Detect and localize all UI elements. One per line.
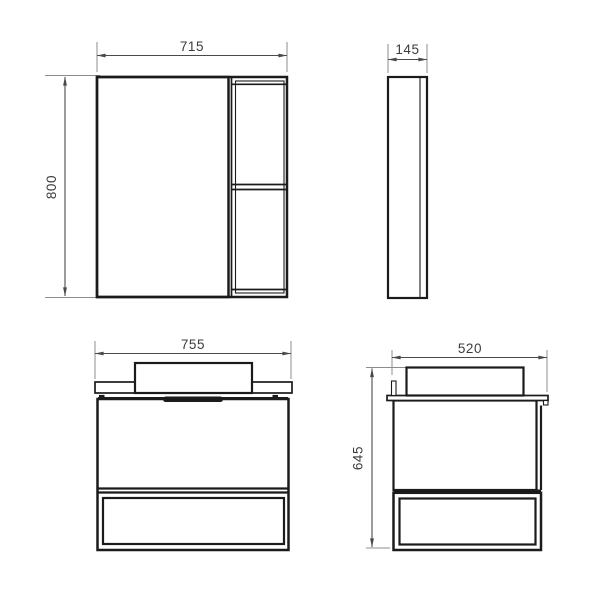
mirror-side-body	[388, 77, 427, 298]
countertop-drip-edge	[544, 401, 549, 406]
technical-drawing-page: 715 800 145	[0, 0, 600, 600]
vanity-front-view: 755	[95, 337, 292, 550]
open-shelf-inner-frame	[400, 499, 536, 545]
dim-label-vanity-depth: 520	[458, 341, 482, 356]
dim-label-mirror-width: 715	[180, 39, 204, 54]
mirror-cabinet-body	[97, 77, 287, 297]
mirror-cabinet-front-view: 715 800	[44, 39, 287, 298]
basin-profile	[407, 368, 524, 396]
drawer-handle	[163, 397, 223, 403]
furniture-dimension-drawing: 715 800 145	[0, 0, 600, 600]
dim-label-vanity-height: 645	[351, 446, 366, 470]
dim-label-vanity-width: 755	[181, 337, 205, 352]
dim-label-mirror-depth: 145	[395, 42, 419, 57]
mirror-cabinet-side-view: 145	[388, 42, 427, 298]
mirror-width-dimension: 715	[97, 39, 287, 72]
vanity-side-view: 520 645	[351, 341, 549, 550]
dim-label-mirror-height: 800	[44, 175, 59, 199]
basin	[135, 363, 252, 393]
backsplash-upstand	[392, 381, 397, 396]
vanity-side-body	[394, 401, 537, 491]
mirror-depth-dimension: 145	[388, 42, 427, 73]
mirror-height-dimension: 800	[44, 76, 100, 298]
open-shelf-inner-frame	[103, 498, 284, 544]
